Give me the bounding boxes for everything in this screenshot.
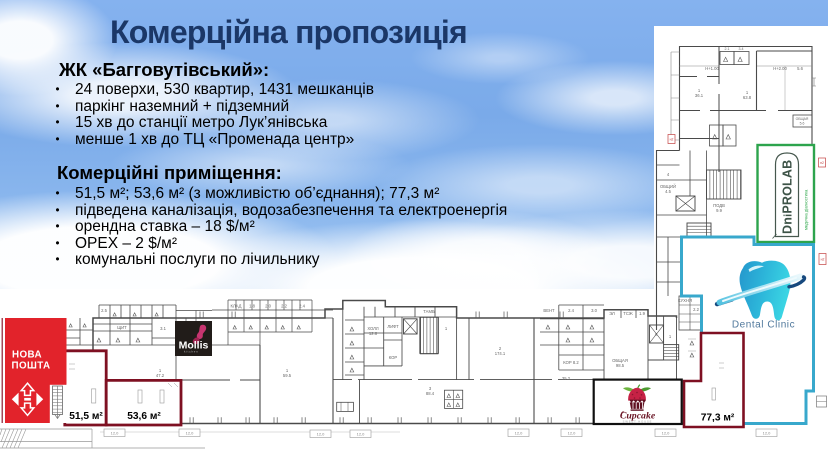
svg-text:2.0: 2.0: [265, 304, 271, 309]
svg-text:1: 1: [445, 326, 448, 331]
svg-text:DniPROLAB: DniPROLAB: [781, 160, 795, 234]
svg-text:1.8: 1.8: [249, 304, 255, 309]
svg-text:КУХНЯ: КУХНЯ: [678, 298, 692, 303]
svg-text:36.1: 36.1: [695, 93, 704, 98]
svg-text:3.4: 3.4: [739, 47, 744, 51]
svg-text:12,0: 12,0: [111, 430, 120, 435]
svg-text:59.5: 59.5: [283, 373, 292, 378]
svg-text:НОВА: НОВА: [12, 349, 42, 360]
svg-text:77,3 м²: 77,3 м²: [701, 413, 735, 424]
svg-text:ВЕНТ: ВЕНТ: [543, 308, 555, 313]
svg-text:Н+1.00: Н+1.00: [705, 66, 719, 71]
svg-text:SWEET HOUSE: SWEET HOUSE: [623, 419, 653, 423]
svg-text:ЭЛ: ЭЛ: [609, 311, 615, 316]
svg-text:2.1: 2.1: [725, 47, 730, 51]
svg-text:98.5: 98.5: [616, 363, 625, 368]
svg-text:5.6: 5.6: [800, 122, 805, 126]
svg-text:12,0: 12,0: [763, 430, 772, 435]
svg-text:12,0: 12,0: [317, 431, 326, 436]
svg-text:12,0: 12,0: [568, 430, 577, 435]
svg-text:12,0: 12,0: [186, 430, 195, 435]
svg-text:12,0: 12,0: [515, 430, 524, 435]
svg-text:88.4: 88.4: [426, 391, 435, 396]
svg-text:12.6: 12.6: [369, 331, 378, 336]
svg-text:4.5: 4.5: [665, 189, 671, 194]
svg-text:63.8: 63.8: [743, 95, 752, 100]
svg-text:ОБЩАЯ: ОБЩАЯ: [796, 117, 809, 121]
svg-text:Н+2.00: Н+2.00: [773, 66, 787, 71]
svg-text:КОР 8.2: КОР 8.2: [563, 360, 579, 365]
svg-text:2.2: 2.2: [693, 307, 699, 312]
svg-text:47.2: 47.2: [156, 373, 165, 378]
svg-text:ТАМБ: ТАМБ: [423, 309, 435, 314]
svg-text:Dental Clinic: Dental Clinic: [732, 320, 795, 331]
svg-text:12,0: 12,0: [357, 431, 366, 436]
svg-text:3.1: 3.1: [160, 326, 166, 331]
svg-text:н2: н2: [820, 161, 824, 165]
svg-text:51,5 м²: 51,5 м²: [69, 411, 103, 422]
svg-text:ЩИТ: ЩИТ: [117, 325, 127, 330]
svg-text:53,6 м²: 53,6 м²: [127, 411, 161, 422]
svg-text:медична діагностика: медична діагностика: [804, 189, 809, 230]
svg-text:2.4: 2.4: [568, 308, 574, 313]
svg-text:ТСЖ: ТСЖ: [623, 311, 633, 316]
svg-text:5.6: 5.6: [797, 66, 803, 71]
svg-text:ПОШТА: ПОШТА: [12, 361, 51, 372]
svg-text:КЛАД: КЛАД: [231, 304, 242, 309]
svg-text:kitchen: kitchen: [184, 349, 198, 353]
svg-text:2.4: 2.4: [299, 304, 305, 309]
svg-text:9.9: 9.9: [716, 208, 722, 213]
svg-text:Л: Л: [655, 332, 658, 337]
svg-text:1: 1: [669, 334, 672, 339]
svg-text:2.2: 2.2: [281, 304, 287, 309]
svg-text:н2: н2: [821, 258, 825, 262]
svg-text:2.5: 2.5: [101, 308, 107, 313]
svg-text:КОР: КОР: [389, 355, 398, 360]
svg-text:3.0: 3.0: [591, 308, 597, 313]
svg-text:174.1: 174.1: [495, 351, 506, 356]
svg-text:4: 4: [667, 172, 670, 177]
svg-text:1.9: 1.9: [639, 311, 645, 316]
svg-text:12,0: 12,0: [662, 430, 671, 435]
svg-text:35.2: 35.2: [562, 376, 571, 381]
svg-text:ЛИФТ: ЛИФТ: [387, 324, 399, 329]
svg-text:н2: н2: [670, 138, 674, 142]
